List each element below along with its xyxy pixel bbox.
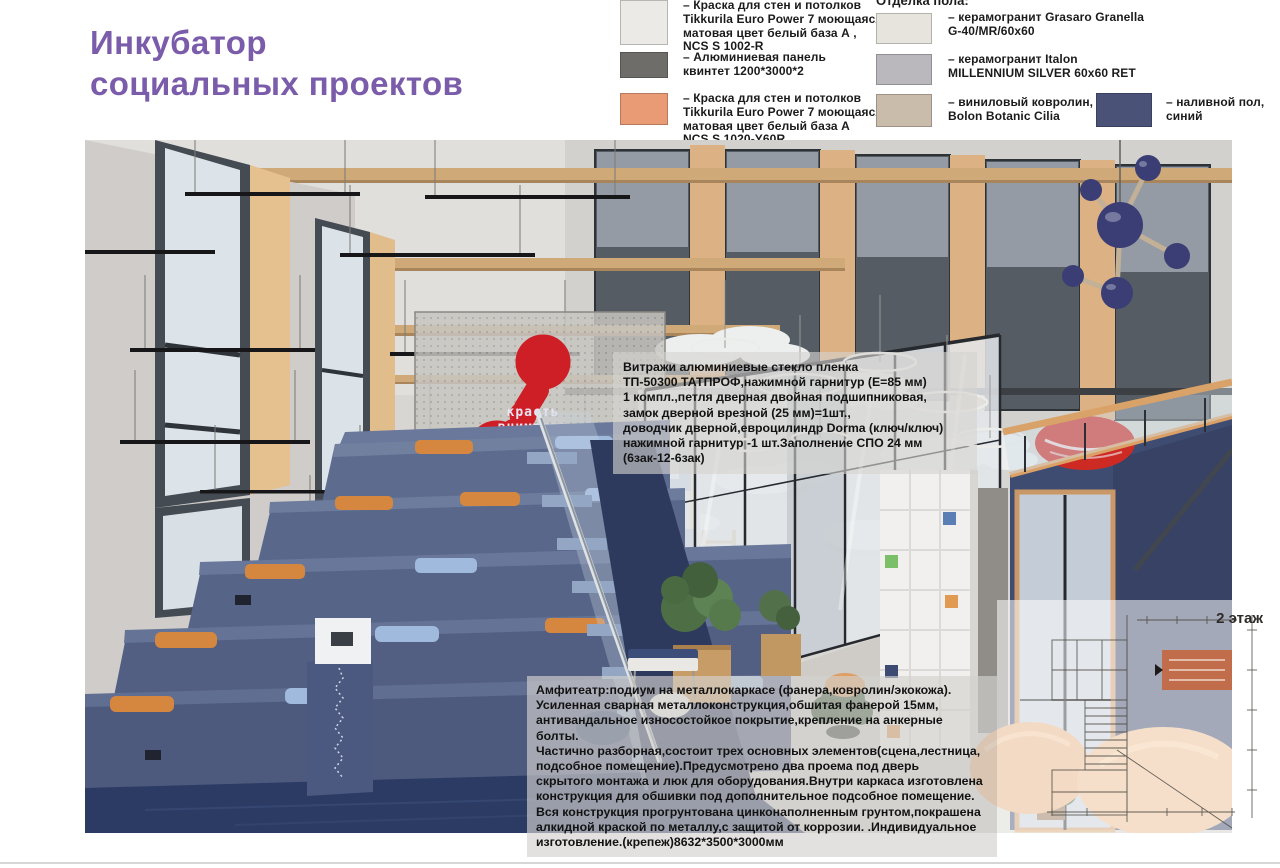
material-label: – наливной пол, синий xyxy=(1166,96,1276,124)
floor-plan-overlay: 2 этаж xyxy=(997,600,1273,833)
material-swatch-alu-panel xyxy=(620,52,668,78)
vitrage-note: Витражи алюминиевые стекло пленка ТП-503… xyxy=(613,352,977,474)
floor-plan-label: 2 этаж xyxy=(1216,610,1263,627)
lectern-podium xyxy=(307,618,373,796)
material-swatch-blue-floor xyxy=(1096,93,1152,127)
amphitheater-note: Амфитеатр:подиум на металлокаркасе (фане… xyxy=(527,676,997,857)
page-title: Инкубатор социальных проектов xyxy=(90,22,463,104)
material-swatch-paint-salmon xyxy=(620,93,668,125)
legend-right-header: Отделка пола: xyxy=(876,0,969,8)
material-swatch-italon xyxy=(876,54,932,85)
amphitheater-plan-marker xyxy=(1155,650,1232,690)
material-swatch-grasaro xyxy=(876,13,932,44)
presentation-slide: Инкубатор социальных проектов – Краска д… xyxy=(0,0,1280,868)
page-title-line2: социальных проектов xyxy=(90,65,463,102)
floor-plan-drawing xyxy=(997,600,1273,833)
material-label: – керамогранит Italon MILLENNIUM SILVER … xyxy=(948,53,1198,81)
material-swatch-bolon xyxy=(876,94,932,127)
laptop-screen xyxy=(331,632,353,646)
material-label: – керамогранит Grasaro Granella G-40/MR/… xyxy=(948,11,1198,39)
material-swatch-paint-white xyxy=(620,0,668,45)
bottom-divider xyxy=(0,862,1280,864)
page-title-line1: Инкубатор xyxy=(90,24,267,61)
